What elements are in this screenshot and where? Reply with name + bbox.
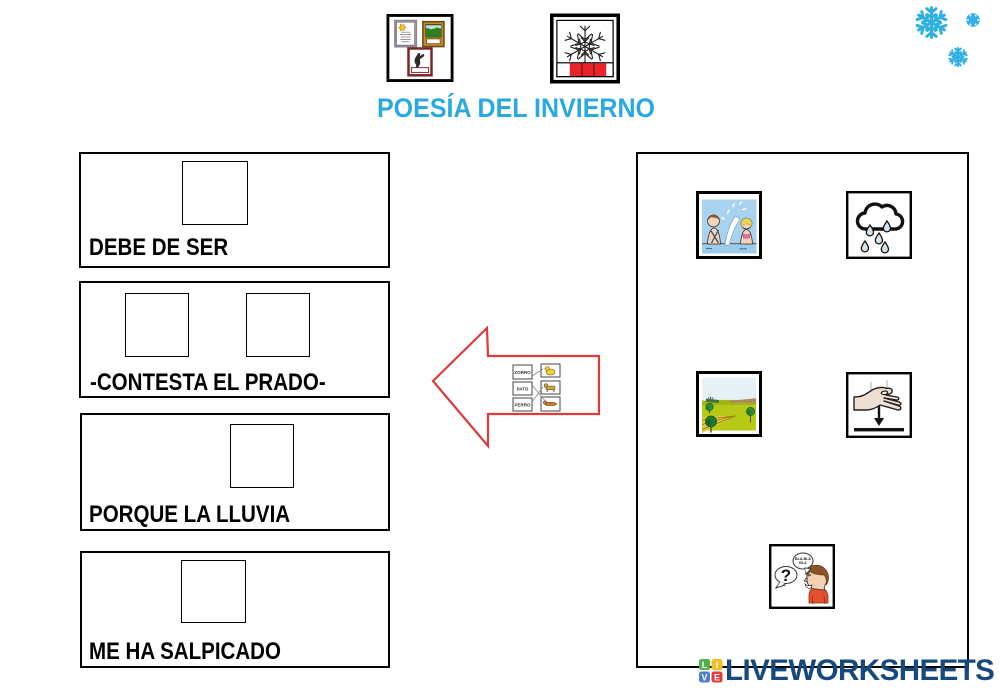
svg-text:ZORRO: ZORRO xyxy=(514,370,531,375)
svg-text:L: L xyxy=(702,660,708,670)
svg-text:BLA: BLA xyxy=(799,561,807,565)
svg-text:V: V xyxy=(701,673,707,683)
svg-text:I: I xyxy=(716,660,719,670)
svg-text:PERRO: PERRO xyxy=(514,403,531,408)
svg-text:?: ? xyxy=(781,566,791,585)
svg-text:PATO: PATO xyxy=(517,387,529,392)
svg-text:E: E xyxy=(714,673,720,683)
svg-text:LIVEWORKSHEETS: LIVEWORKSHEETS xyxy=(725,658,994,687)
